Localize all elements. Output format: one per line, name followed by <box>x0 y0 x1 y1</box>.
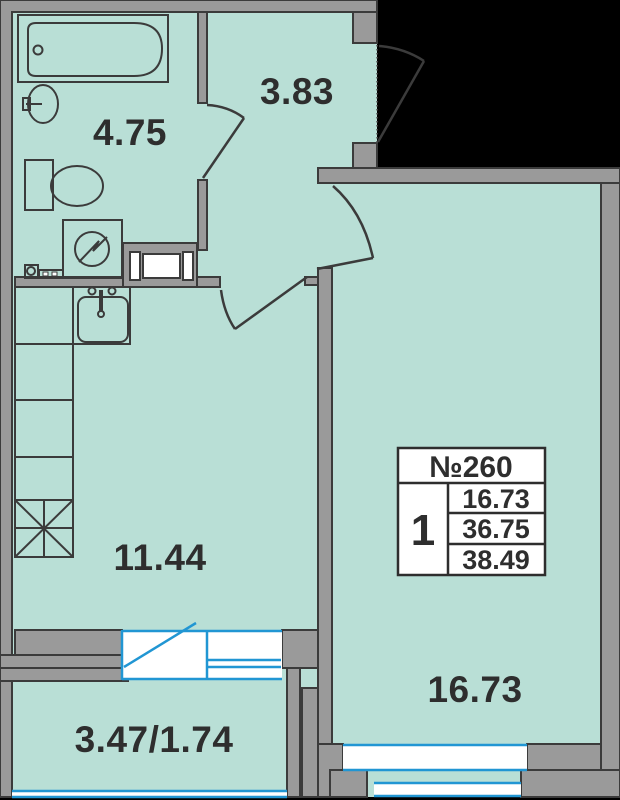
entrance-jamb-top <box>353 12 377 43</box>
radiator-slot-1 <box>43 272 48 276</box>
bedroom-window-stub-right-b <box>521 770 620 797</box>
bathroom-partition-upper <box>198 12 207 103</box>
balcony-front-window <box>12 791 287 797</box>
bedroom-window-bg <box>343 746 527 769</box>
bathroom-partition-lower <box>198 180 207 250</box>
cabinet-slot-left <box>130 252 140 280</box>
radiator-slot-2 <box>52 272 57 276</box>
balcony-right-wall-outer <box>302 688 318 797</box>
living-area-value: 16.73 <box>462 484 530 514</box>
cabinet-slot-right <box>183 252 193 280</box>
bathroom-area-label: 4.75 <box>93 112 167 153</box>
floor-plan-page: 4.75 3.83 11.44 16.73 3.47/1.74 №260 1 1… <box>0 0 620 800</box>
bedroom-window-outer-bg <box>374 784 521 796</box>
stove-icon <box>15 500 73 557</box>
bedroom-window-stub-left-b <box>330 770 367 797</box>
kitchen-area-label: 11.44 <box>113 537 206 578</box>
balcony-wall-layer-a <box>0 655 122 668</box>
kitchen-bottom-left-block <box>15 630 122 655</box>
total-area-value: 38.49 <box>462 545 530 575</box>
entrance-jamb-bottom <box>353 143 377 168</box>
outer-wall-right <box>601 168 620 797</box>
cabinet-slot-middle <box>143 254 180 278</box>
balcony-wall-layer-b <box>0 668 128 681</box>
outside-area-top <box>377 0 620 168</box>
bedroom-top-wall <box>318 168 620 183</box>
apartment-area-value: 36.75 <box>462 514 530 544</box>
apartment-number: №260 <box>429 451 513 484</box>
balcony-door-window <box>122 623 282 680</box>
balcony-area-label: 3.47/1.74 <box>75 719 234 760</box>
bedroom-area-label: 16.73 <box>427 669 522 710</box>
bedroom-window-stub-right-a <box>527 744 601 770</box>
room-count: 1 <box>411 506 435 555</box>
hallway-area-label: 3.83 <box>260 71 334 112</box>
floor-plan: 4.75 3.83 11.44 16.73 3.47/1.74 №260 1 1… <box>0 0 620 800</box>
balcony-front-window-bg <box>12 792 287 796</box>
apartment-info-box: №260 1 16.73 36.75 38.49 <box>398 448 545 575</box>
balcony-right-wall-inner <box>287 668 300 797</box>
bedroom-left-wall <box>318 268 332 744</box>
balcony-assembly-right-block <box>282 630 318 668</box>
